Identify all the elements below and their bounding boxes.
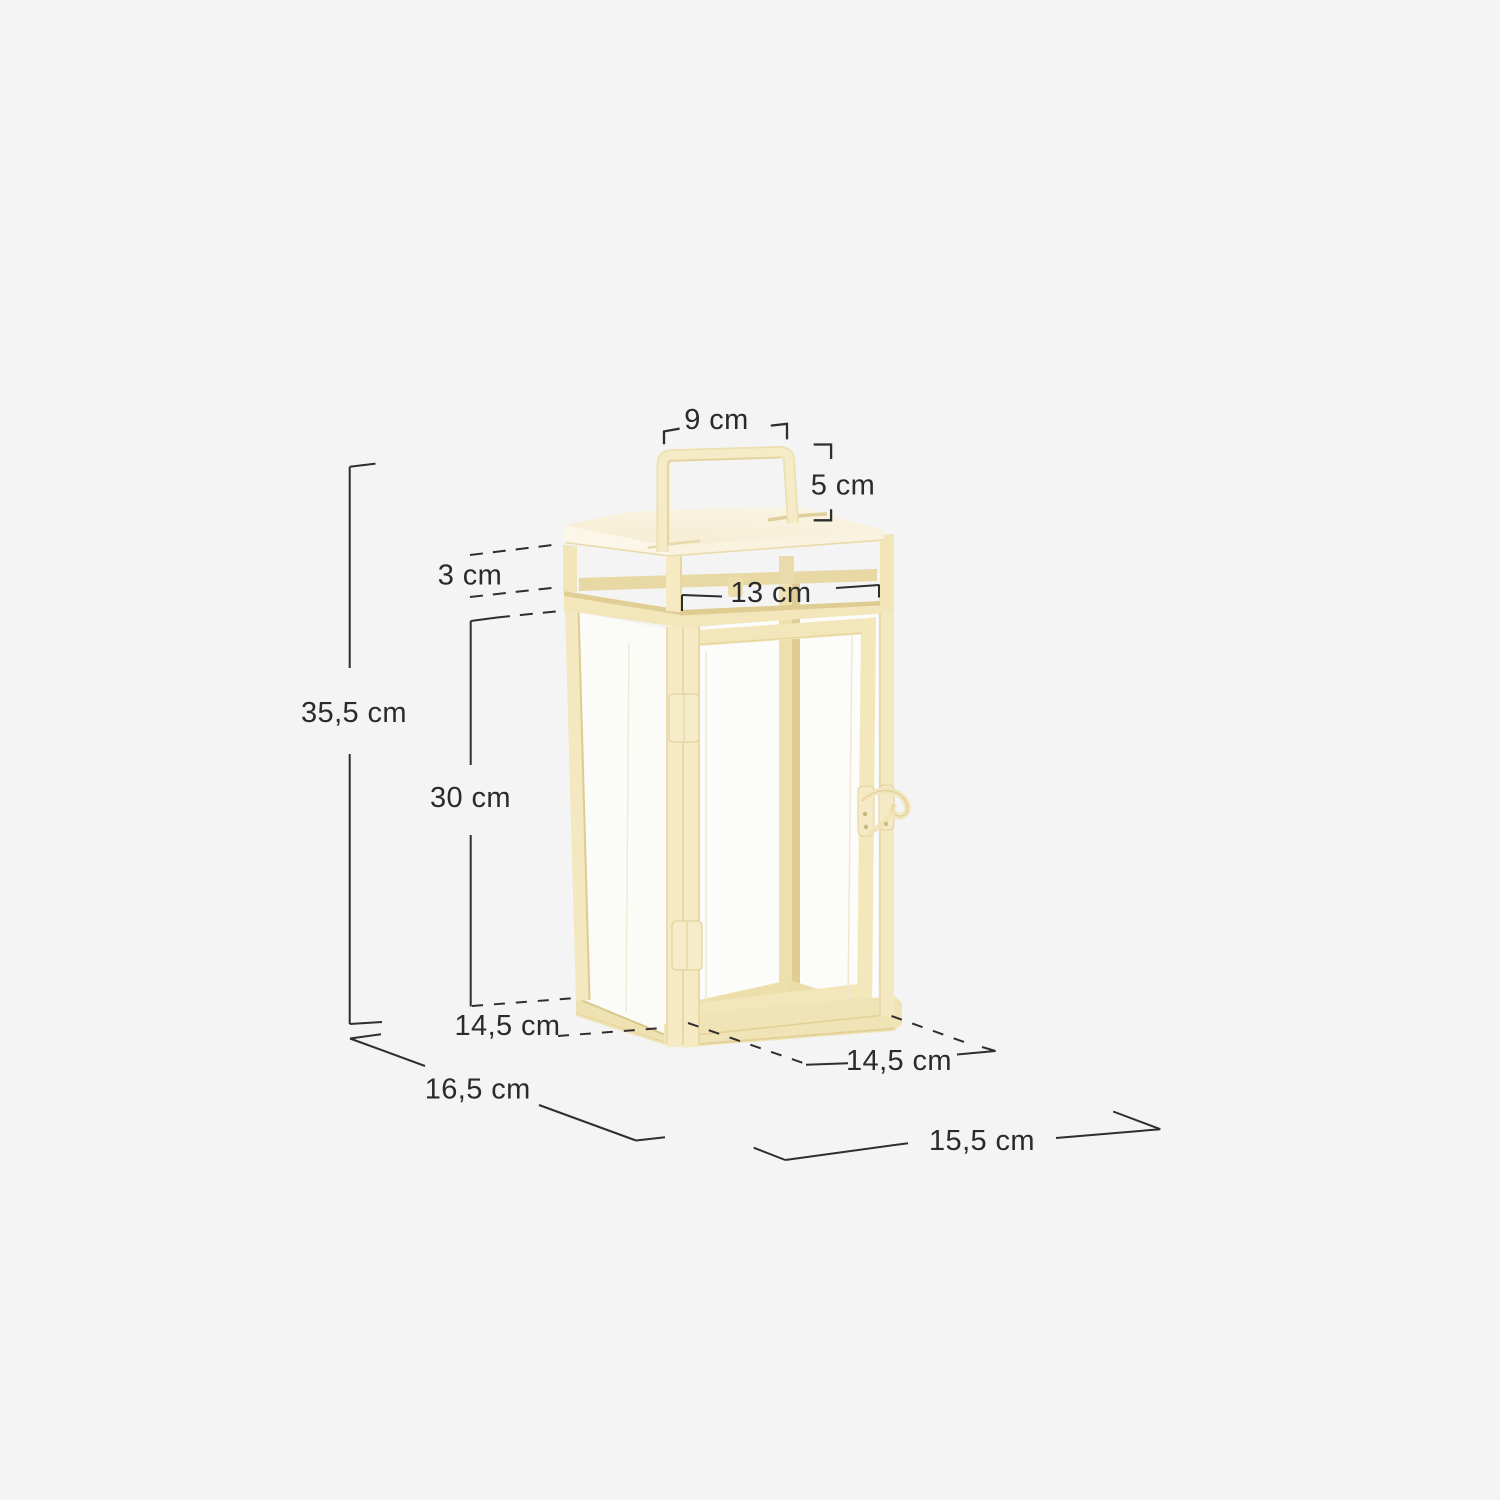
svg-text:35,5 cm: 35,5 cm: [301, 697, 407, 729]
svg-text:9 cm: 9 cm: [684, 404, 748, 436]
svg-text:14,5 cm: 14,5 cm: [846, 1045, 952, 1077]
svg-text:14,5 cm: 14,5 cm: [455, 1010, 561, 1042]
svg-text:3 cm: 3 cm: [438, 560, 502, 592]
svg-text:5 cm: 5 cm: [811, 470, 875, 502]
svg-text:15,5 cm: 15,5 cm: [929, 1125, 1035, 1157]
svg-text:16,5 cm: 16,5 cm: [425, 1074, 531, 1106]
svg-text:13 cm: 13 cm: [731, 577, 812, 609]
svg-text:30 cm: 30 cm: [430, 782, 511, 814]
